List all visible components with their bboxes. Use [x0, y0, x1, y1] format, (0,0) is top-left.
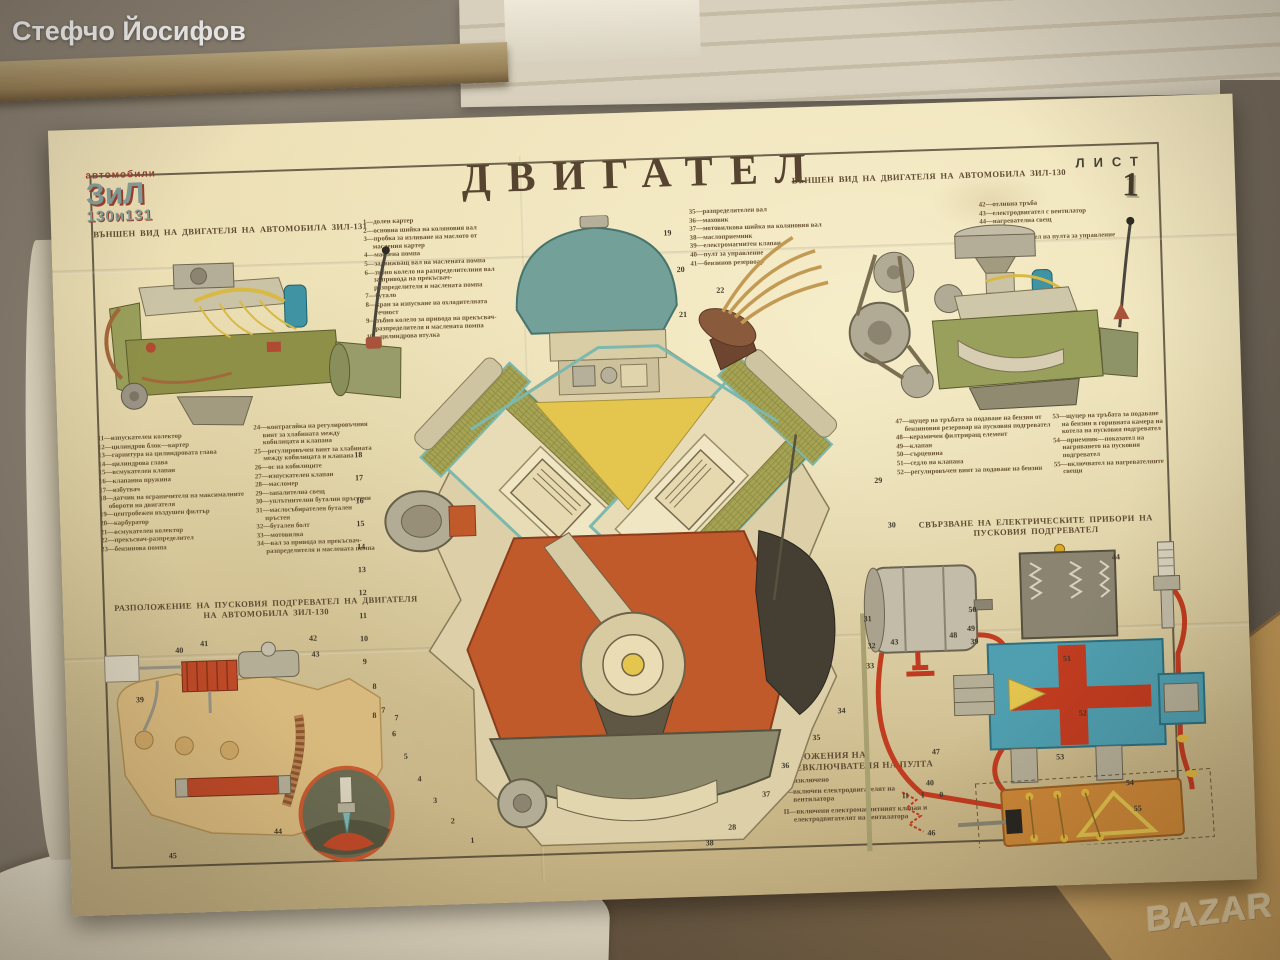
engine-cross-section-illustration — [354, 207, 906, 863]
legend-item: 54—приемник—показател на нагряването на … — [1053, 434, 1166, 460]
electric-diagram-illustration — [854, 532, 1225, 851]
expansion-tank — [104, 655, 139, 682]
switch-knob — [1005, 809, 1023, 834]
photo-scene: ДВИГАТЕЛ автомобили ЗиЛ 130и131 ЛИСТ 1 В… — [0, 0, 1280, 960]
wooden-batten — [0, 42, 509, 102]
crank-pulley — [498, 778, 547, 827]
heater-boiler-lower — [185, 776, 281, 797]
gearbox — [1100, 327, 1140, 378]
coolant-hose — [863, 613, 870, 851]
hex-nut — [954, 674, 995, 715]
oil-pan — [177, 395, 253, 427]
oil-filter — [284, 285, 307, 328]
legend-item: 55—включвател на нагревателните свещи — [1054, 457, 1166, 476]
cylinder-block — [125, 330, 340, 397]
legend-47-52: 47—щуцер на тръбата за подаване на бензи… — [895, 413, 1052, 477]
preheater-layout-illustration — [86, 616, 425, 869]
air-filter — [514, 213, 678, 334]
poster: ДВИГАТЕЛ автомобили ЗиЛ 130и131 ЛИСТ 1 В… — [48, 94, 1257, 917]
legend-11-23: 11—изпускателен колектор12—цилиндров бло… — [98, 431, 252, 555]
glow-plug — [339, 777, 352, 803]
heater-plug — [1152, 541, 1181, 628]
switch-shaft — [958, 822, 1008, 825]
zil-logo-line2: ЗиЛ — [86, 179, 157, 209]
rolled-chart — [504, 0, 701, 63]
drain-bolt — [1011, 748, 1038, 783]
zil-logo: автомобили ЗиЛ 130и131 — [85, 169, 157, 225]
legend-item: 34—вал за привода на прекъсвач-разпредел… — [257, 537, 379, 556]
electromagnetic-valve — [953, 638, 1207, 785]
sheet-number-block: ЛИСТ 1 — [1075, 152, 1148, 202]
solenoid — [1020, 551, 1118, 639]
boiler — [182, 660, 238, 692]
watermark-text: Стефчо Йосифов — [12, 16, 246, 46]
switch-position-sketch — [902, 792, 923, 833]
zil-logo-line3: 130и131 — [86, 207, 157, 225]
legend-53-55: 53—щуцер на тръбата за подаване на бензи… — [1052, 410, 1166, 477]
carburetor — [550, 330, 668, 396]
magnifier-inset — [299, 766, 394, 861]
